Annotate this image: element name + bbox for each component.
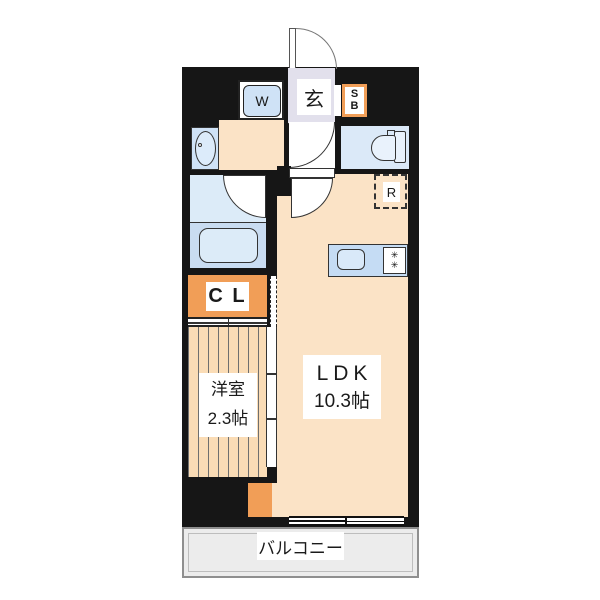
entrance-door-leaf xyxy=(289,28,296,69)
genkan-label: 玄 xyxy=(297,79,331,115)
ldk-name: LDK xyxy=(312,362,373,386)
ldk-floor xyxy=(277,174,408,517)
western-room-name: 洋室 xyxy=(211,376,245,405)
washing-machine-label: W xyxy=(243,85,281,117)
kitchen-sink-icon xyxy=(337,249,365,270)
washing-machine-unit: W xyxy=(238,80,284,120)
shoebox-label: S B xyxy=(345,87,364,114)
shoebox-door-strip xyxy=(334,85,341,116)
washbasin-drain-icon xyxy=(198,143,202,147)
closet-door-tick xyxy=(228,319,230,325)
ldk-door-threshold xyxy=(289,168,335,178)
sliding-door-joint xyxy=(267,373,276,375)
ldk-floor-extension xyxy=(272,483,278,517)
closet-label: C L xyxy=(206,282,249,311)
floor-plan: 玄 W S B R ✳ ✳ LDK 10.3帖 xyxy=(0,0,600,600)
toilet-bowl-icon xyxy=(371,135,396,161)
sliding-door-joint xyxy=(267,418,276,420)
shoebox-label-top: S xyxy=(351,89,358,101)
entrance-door-swing-arc xyxy=(296,28,337,69)
stove-burner-icon: ✳ xyxy=(391,261,399,270)
western-room-size: 2.3帖 xyxy=(208,405,249,434)
balcony-window xyxy=(289,516,404,526)
balcony-label: バルコニー xyxy=(257,532,344,560)
kitchen-stove: ✳ ✳ xyxy=(383,247,406,274)
ldk-label: LDK 10.3帖 xyxy=(303,355,381,419)
window-center-tick xyxy=(345,517,347,525)
washbasin-icon xyxy=(195,131,216,166)
refrigerator-label: R xyxy=(383,182,400,202)
window-pane-line xyxy=(347,521,404,523)
shoebox: S B xyxy=(342,84,367,117)
bathtub-icon xyxy=(199,228,258,263)
closet-sliding-door xyxy=(188,317,267,327)
room-divider-sliding-door xyxy=(266,327,277,467)
stove-burner-icon: ✳ xyxy=(391,251,399,260)
window-pane-line xyxy=(289,520,346,522)
dashed-partition xyxy=(270,276,277,327)
western-room-label: 洋室 2.3帖 xyxy=(199,373,257,437)
shoebox-label-bottom: B xyxy=(351,101,359,113)
ldk-size: 10.3帖 xyxy=(314,386,370,413)
pillar-block xyxy=(248,483,272,517)
washroom-floor xyxy=(219,120,284,170)
